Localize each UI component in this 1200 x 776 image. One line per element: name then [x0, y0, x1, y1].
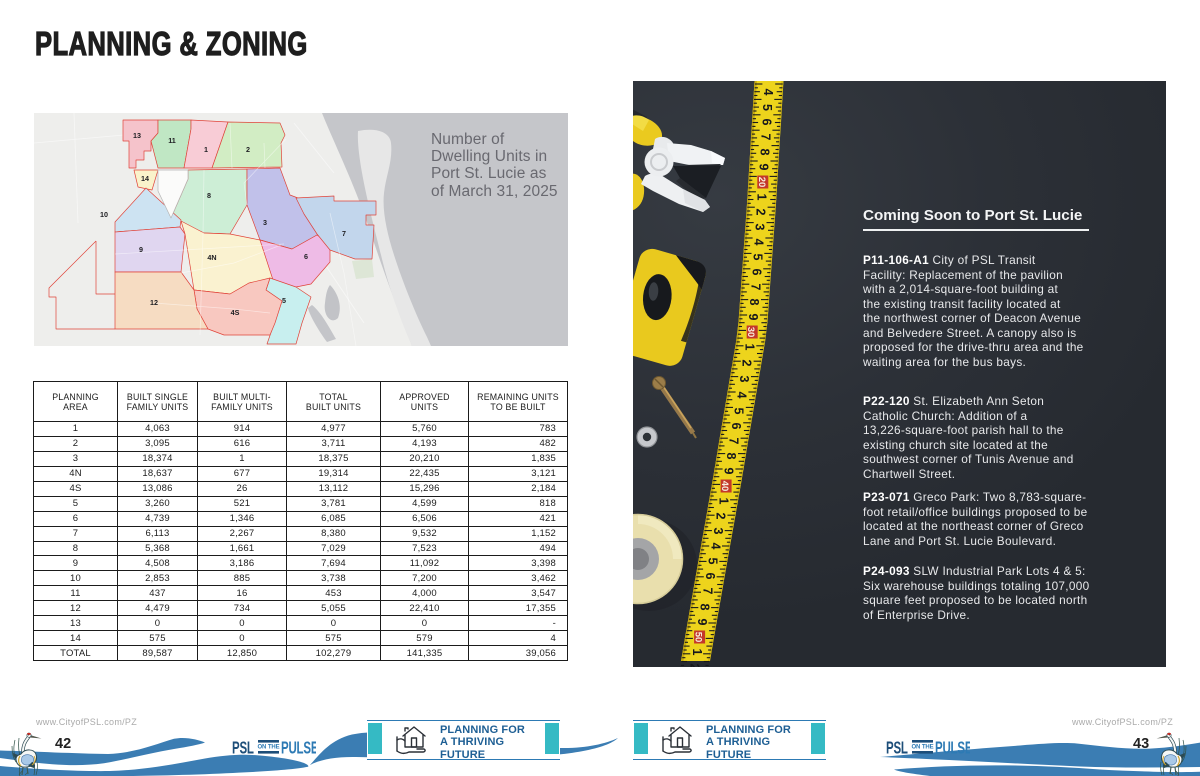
- svg-text:7: 7: [748, 284, 762, 291]
- svg-text:8: 8: [747, 299, 761, 306]
- svg-text:4S: 4S: [231, 308, 240, 317]
- svg-text:8: 8: [207, 191, 211, 200]
- svg-text:9: 9: [722, 468, 736, 475]
- svg-text:7: 7: [758, 134, 772, 141]
- svg-text:2: 2: [740, 360, 754, 367]
- svg-text:3: 3: [711, 528, 725, 535]
- svg-text:PULSE: PULSE: [935, 738, 970, 756]
- svg-text:9: 9: [139, 245, 143, 254]
- svg-text:6: 6: [703, 573, 717, 580]
- svg-text:6: 6: [304, 252, 308, 261]
- svg-text:4: 4: [708, 543, 722, 550]
- svg-text:40: 40: [719, 481, 730, 492]
- svg-text:4N: 4N: [207, 253, 216, 262]
- svg-text:7: 7: [727, 438, 741, 445]
- svg-text:8: 8: [698, 604, 712, 611]
- svg-text:1: 1: [743, 344, 757, 351]
- svg-text:5: 5: [732, 408, 746, 415]
- svg-text:1: 1: [690, 649, 704, 656]
- svg-text:5: 5: [706, 558, 720, 565]
- svg-text:3: 3: [737, 376, 751, 383]
- svg-text:4: 4: [752, 239, 766, 246]
- svg-text:20: 20: [756, 177, 767, 188]
- svg-text:2: 2: [246, 145, 250, 154]
- svg-text:PSL: PSL: [886, 738, 908, 756]
- svg-text:4: 4: [734, 392, 748, 399]
- svg-text:4: 4: [761, 89, 775, 96]
- svg-text:30: 30: [745, 327, 756, 338]
- svg-text:2: 2: [687, 664, 701, 667]
- svg-text:7: 7: [701, 588, 715, 595]
- svg-text:1: 1: [716, 498, 730, 505]
- svg-text:14: 14: [141, 174, 149, 183]
- svg-text:5: 5: [751, 254, 765, 261]
- svg-text:9: 9: [746, 314, 760, 321]
- svg-text:ON THE: ON THE: [911, 745, 933, 751]
- svg-text:3: 3: [753, 224, 767, 231]
- svg-text:ON THE: ON THE: [257, 745, 279, 751]
- svg-text:5: 5: [282, 296, 286, 305]
- svg-text:7: 7: [342, 229, 346, 238]
- svg-text:9: 9: [757, 164, 771, 171]
- svg-text:9: 9: [695, 619, 709, 626]
- svg-text:PSL: PSL: [232, 738, 254, 756]
- svg-text:PULSE: PULSE: [281, 738, 316, 756]
- svg-text:6: 6: [729, 423, 743, 430]
- svg-text:11: 11: [168, 136, 176, 145]
- svg-text:8: 8: [724, 453, 738, 460]
- svg-text:6: 6: [749, 269, 763, 276]
- svg-text:2: 2: [754, 209, 768, 216]
- svg-text:5: 5: [760, 104, 774, 111]
- svg-text:1: 1: [755, 194, 769, 201]
- svg-text:13: 13: [133, 131, 141, 140]
- svg-text:1: 1: [204, 145, 208, 154]
- svg-text:3: 3: [263, 218, 267, 227]
- svg-text:8: 8: [758, 149, 772, 156]
- svg-text:50: 50: [693, 632, 704, 643]
- svg-text:6: 6: [759, 119, 773, 126]
- svg-text:12: 12: [150, 298, 158, 307]
- svg-text:2: 2: [714, 513, 728, 520]
- svg-text:10: 10: [100, 210, 108, 219]
